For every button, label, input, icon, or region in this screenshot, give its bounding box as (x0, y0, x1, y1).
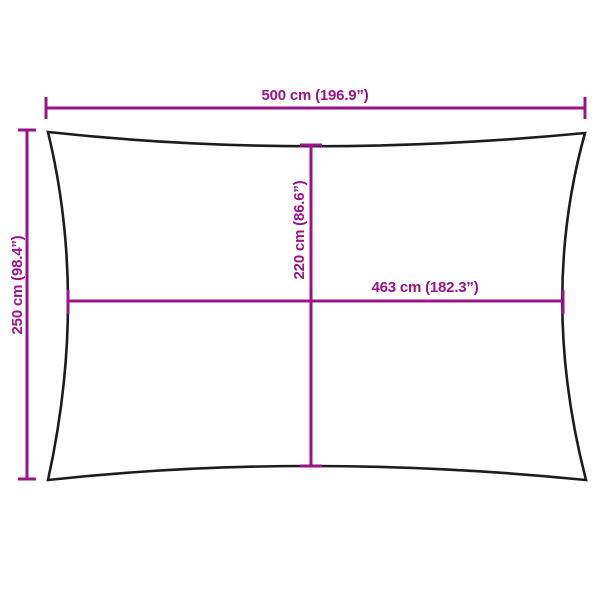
dimension-diagram-svg: 500 cm (196.9”) 250 cm (98.4”) 220 cm (8… (0, 0, 600, 600)
dimension-diagram: 500 cm (196.9”) 250 cm (98.4”) 220 cm (8… (0, 0, 600, 600)
inner-height-label: 220 cm (86.6”) (291, 180, 308, 279)
sail-outline (48, 132, 586, 480)
overall-height-label: 250 cm (98.4”) (9, 235, 26, 334)
overall-width-label: 500 cm (196.9”) (261, 87, 368, 104)
inner-width-label: 463 cm (182.3”) (371, 279, 478, 296)
